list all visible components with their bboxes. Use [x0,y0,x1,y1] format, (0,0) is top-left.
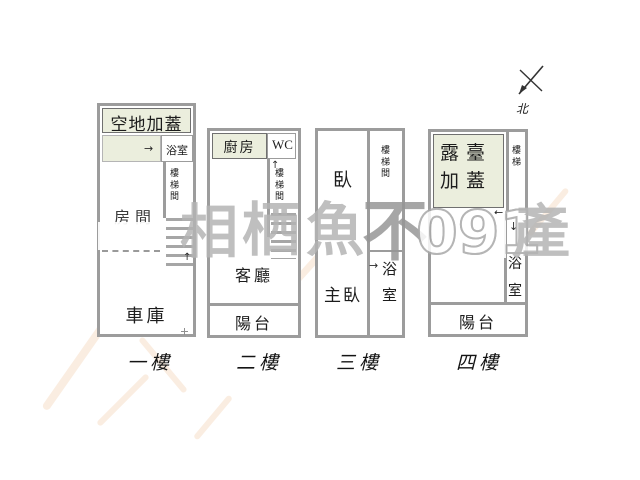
dimension-tick [181,331,188,332]
floor1-garage-label: 車庫 [100,302,193,328]
background-watermark-stroke [193,395,233,441]
watermark-band: 相 栖 魚 不 091 產 [180,199,580,269]
floorplan-image: 北 空地加蓋 浴室 → 樓梯間 ↑ 房間 車庫 廚房 WC ↑ 樓梯間 客廳 陽… [0,0,640,480]
floor1-name-label: 一樓 [120,348,180,375]
watermark-white-patch [98,222,164,250]
floor1-stairwell-label: 樓梯間 [170,168,179,203]
floor2-balcony-wall [210,303,298,306]
floor4-name-label: 四樓 [449,348,509,375]
floor3-bedroom-label: 臥 [333,165,352,192]
floor4-terrace-roof-label: 露臺加蓋 [440,140,494,195]
floor4-balcony-wall [431,302,525,305]
floor2-name-label: 二樓 [229,348,289,375]
floor3-stairwell-label: 樓梯間 [381,145,390,180]
floor1-bathroom-label: 浴室 [166,142,188,158]
watermark-char: 栖 [242,201,300,259]
floor2-kitchen-label: 廚房 [212,137,267,157]
floor3-master-bedroom-label: 主臥 [320,281,366,306]
floor1-stair-wall [163,162,166,218]
floor4-stairs-label: 樓梯 [512,145,521,168]
floor1-dashed-boundary [102,250,160,252]
north-compass-icon [503,58,555,106]
floor3-name-label: 三樓 [329,348,389,375]
north-label: 北 [516,100,528,117]
floor4-balcony-label: 陽台 [431,309,525,333]
watermark-char: 魚 [306,201,364,259]
door-arrow-right-icon: → [144,142,153,155]
floor2-wc-label: WC [272,137,293,153]
floor1-vacant-roof-label: 空地加蓋 [102,110,191,135]
watermark-char: 相 [180,203,238,261]
background-watermark-stroke [96,373,150,427]
floor2-balcony-label: 陽台 [210,310,298,334]
watermark-char: 產 [512,203,570,261]
